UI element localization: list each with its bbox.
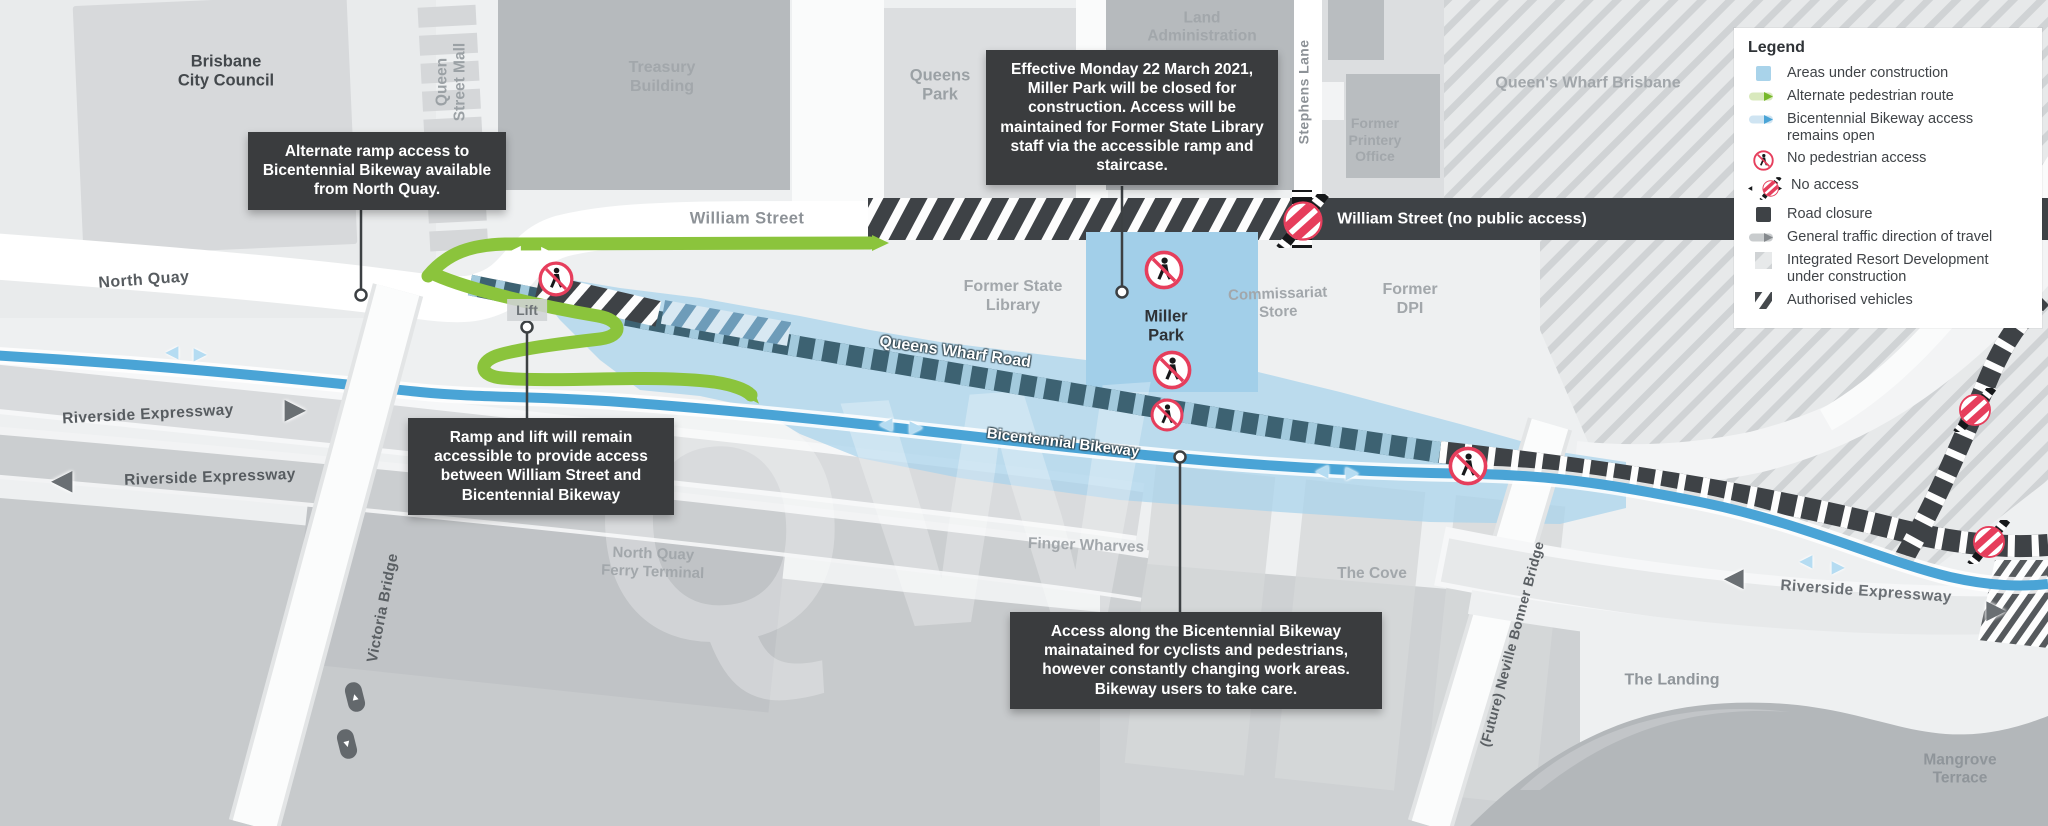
traffic-direction-arrow-icon: ◀ (1725, 564, 1743, 593)
callout-ramp-lift: Ramp and lift will remain accessible to … (408, 418, 674, 515)
callout-bikeway-access: Access along the Bicentennial Bikeway ma… (1010, 612, 1382, 709)
bikeway-direction-arrow-icon: ◀ (1316, 461, 1328, 481)
legend-item-road-closure: Road closure (1748, 206, 2028, 223)
traffic-direction-swatch-icon (1748, 229, 1778, 246)
bikeway-direction-arrow-icon: ▶ (1832, 557, 1844, 577)
callout-miller-park-closure: Effective Monday 22 March 2021, Miller P… (986, 50, 1278, 185)
legend-title: Legend (1748, 39, 2028, 57)
legend-panel: Legend Areas under construction Alternat… (1734, 28, 2042, 328)
no-pedestrian-access-icon (1748, 150, 1778, 171)
pedestrian-route-arrow-icon: ▶ (541, 244, 550, 258)
legend-item-no-access: No access (1748, 177, 2028, 200)
bikeway-direction-arrow-icon: ▶ (910, 417, 922, 437)
bikeway-direction-arrow-icon: ◀ (1800, 551, 1812, 571)
no-access-icon (1276, 194, 1330, 248)
ird-hatch-swatch-icon (1748, 252, 1778, 269)
label-lift: Lift (507, 299, 547, 321)
no-pedestrian-access-icon (1448, 446, 1488, 486)
legend-item-alternate-pedestrian-route: Alternate pedestrian route (1748, 88, 2028, 105)
legend-item-integrated-resort-development: Integrated Resort Development under cons… (1748, 252, 2028, 285)
bikeway-direction-arrow-icon: ▶ (1346, 463, 1358, 483)
no-pedestrian-access-icon (1150, 398, 1184, 432)
no-pedestrian-access-icon (538, 261, 574, 297)
no-pedestrian-access-icon (1144, 250, 1184, 290)
legend-item-areas-under-construction: Areas under construction (1748, 65, 2028, 82)
construction-map: QW (0, 0, 2048, 826)
road-closure-swatch-icon (1748, 206, 1778, 223)
bikeway-direction-arrow-icon: ▶ (194, 344, 206, 364)
no-pedestrian-access-icon (1152, 350, 1192, 390)
construction-area-swatch-icon (1748, 65, 1778, 82)
traffic-direction-arrow-icon: ▶ (285, 394, 305, 425)
bikeway-direction-arrow-icon: ◀ (166, 342, 178, 362)
authorised-vehicles-swatch-icon (1748, 292, 1778, 309)
traffic-direction-arrow-icon: ◀ (52, 465, 72, 496)
legend-item-authorised-vehicles: Authorised vehicles (1748, 292, 2028, 309)
traffic-direction-arrow-icon: ▶ (1987, 596, 2005, 625)
no-access-icon (1953, 388, 1997, 432)
legend-item-no-pedestrian-access: No pedestrian access (1748, 150, 2028, 171)
pedestrian-route-arrow-icon: ◀ (511, 243, 520, 257)
bikeway-direction-arrow-icon: ◀ (880, 414, 892, 434)
bikeway-swatch-icon (1748, 111, 1778, 128)
no-access-icon (1748, 177, 1782, 200)
legend-item-general-traffic-direction: General traffic direction of travel (1748, 229, 2028, 246)
legend-item-bikeway-access-open: Bicentennial Bikeway access remains open (1748, 111, 2028, 144)
callout-north-quay-ramp: Alternate ramp access to Bicentennial Bi… (248, 132, 506, 210)
pedestrian-route-swatch-icon (1748, 88, 1778, 105)
no-access-icon (1967, 520, 2011, 564)
